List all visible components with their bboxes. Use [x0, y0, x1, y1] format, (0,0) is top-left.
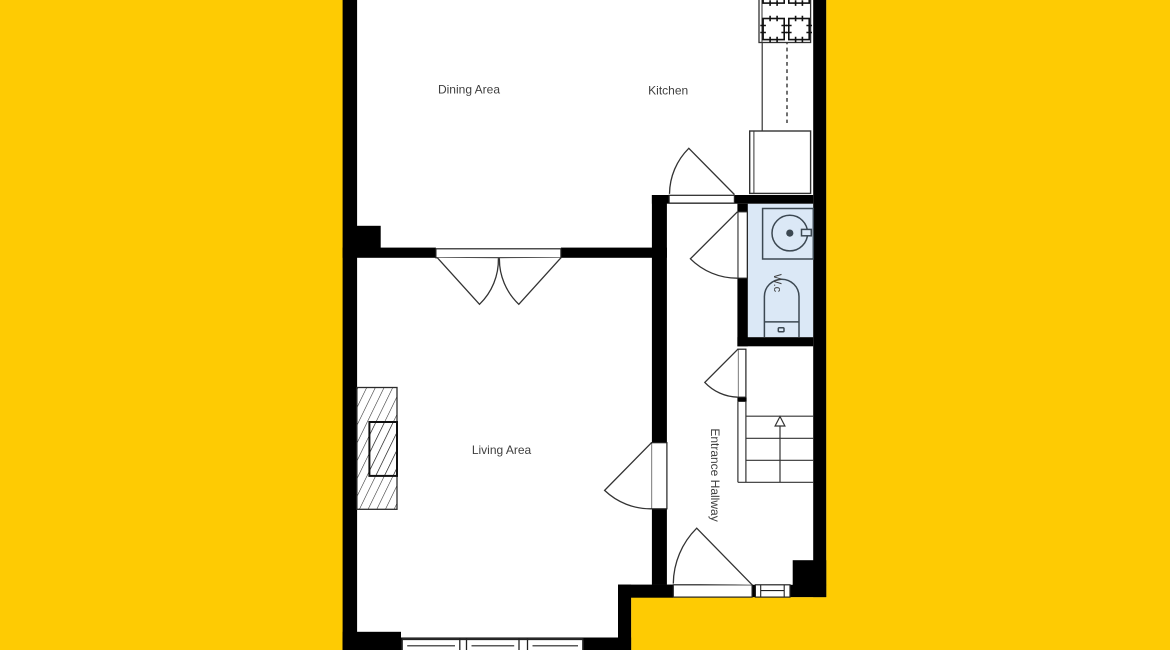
svg-text:Living Area: Living Area: [472, 443, 532, 457]
svg-text:Entrance Hallway: Entrance Hallway: [708, 428, 722, 521]
svg-text:W.c: W.c: [771, 274, 783, 293]
svg-text:Dining Area: Dining Area: [438, 83, 500, 97]
svg-text:Kitchen: Kitchen: [648, 84, 688, 98]
